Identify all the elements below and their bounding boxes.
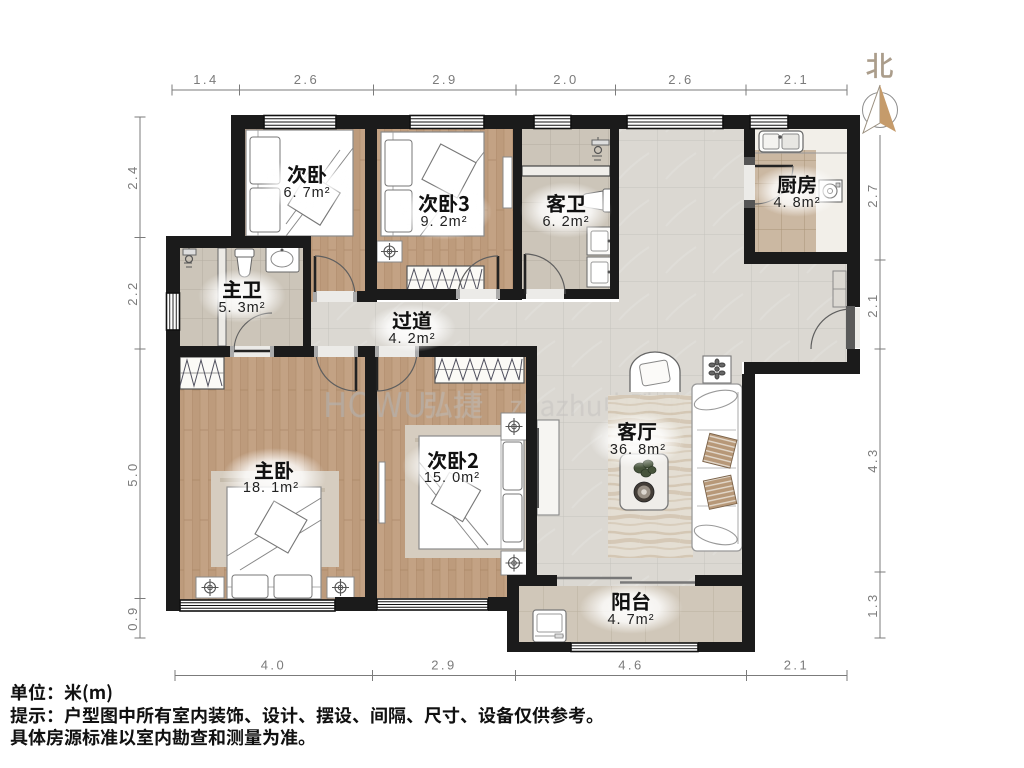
svg-text:2.1: 2.1 <box>784 658 810 673</box>
svg-text:4.3: 4.3 <box>865 447 880 473</box>
svg-text:4.0: 4.0 <box>261 658 287 673</box>
svg-text:2.9: 2.9 <box>432 72 458 87</box>
svg-text:4. 8m²: 4. 8m² <box>773 195 820 211</box>
svg-text:4. 7m²: 4. 7m² <box>607 612 654 628</box>
svg-text:2.9: 2.9 <box>431 658 457 673</box>
svg-text:1.3: 1.3 <box>865 592 880 618</box>
svg-text:18. 1m²: 18. 1m² <box>243 480 299 496</box>
svg-text:0.9: 0.9 <box>125 605 140 631</box>
svg-text:2.2: 2.2 <box>125 280 140 306</box>
svg-text:2.0: 2.0 <box>553 72 579 87</box>
svg-text:2.1: 2.1 <box>784 72 810 87</box>
svg-text:2.7: 2.7 <box>865 182 880 208</box>
svg-text:5.0: 5.0 <box>125 461 140 487</box>
svg-text:4.6: 4.6 <box>618 658 644 673</box>
svg-text:5. 3m²: 5. 3m² <box>218 300 265 316</box>
svg-text:6. 7m²: 6. 7m² <box>283 185 330 201</box>
svg-text:2.4: 2.4 <box>125 164 140 190</box>
svg-text:2.1: 2.1 <box>865 292 880 318</box>
svg-text:6. 2m²: 6. 2m² <box>542 214 589 230</box>
svg-text:15. 0m²: 15. 0m² <box>424 470 480 486</box>
svg-text:4. 2m²: 4. 2m² <box>388 331 435 347</box>
svg-text:2.6: 2.6 <box>668 72 694 87</box>
svg-text:36. 8m²: 36. 8m² <box>610 442 666 458</box>
svg-text:2.6: 2.6 <box>294 72 320 87</box>
svg-text:1.4: 1.4 <box>193 72 219 87</box>
svg-text:9. 2m²: 9. 2m² <box>420 214 467 230</box>
